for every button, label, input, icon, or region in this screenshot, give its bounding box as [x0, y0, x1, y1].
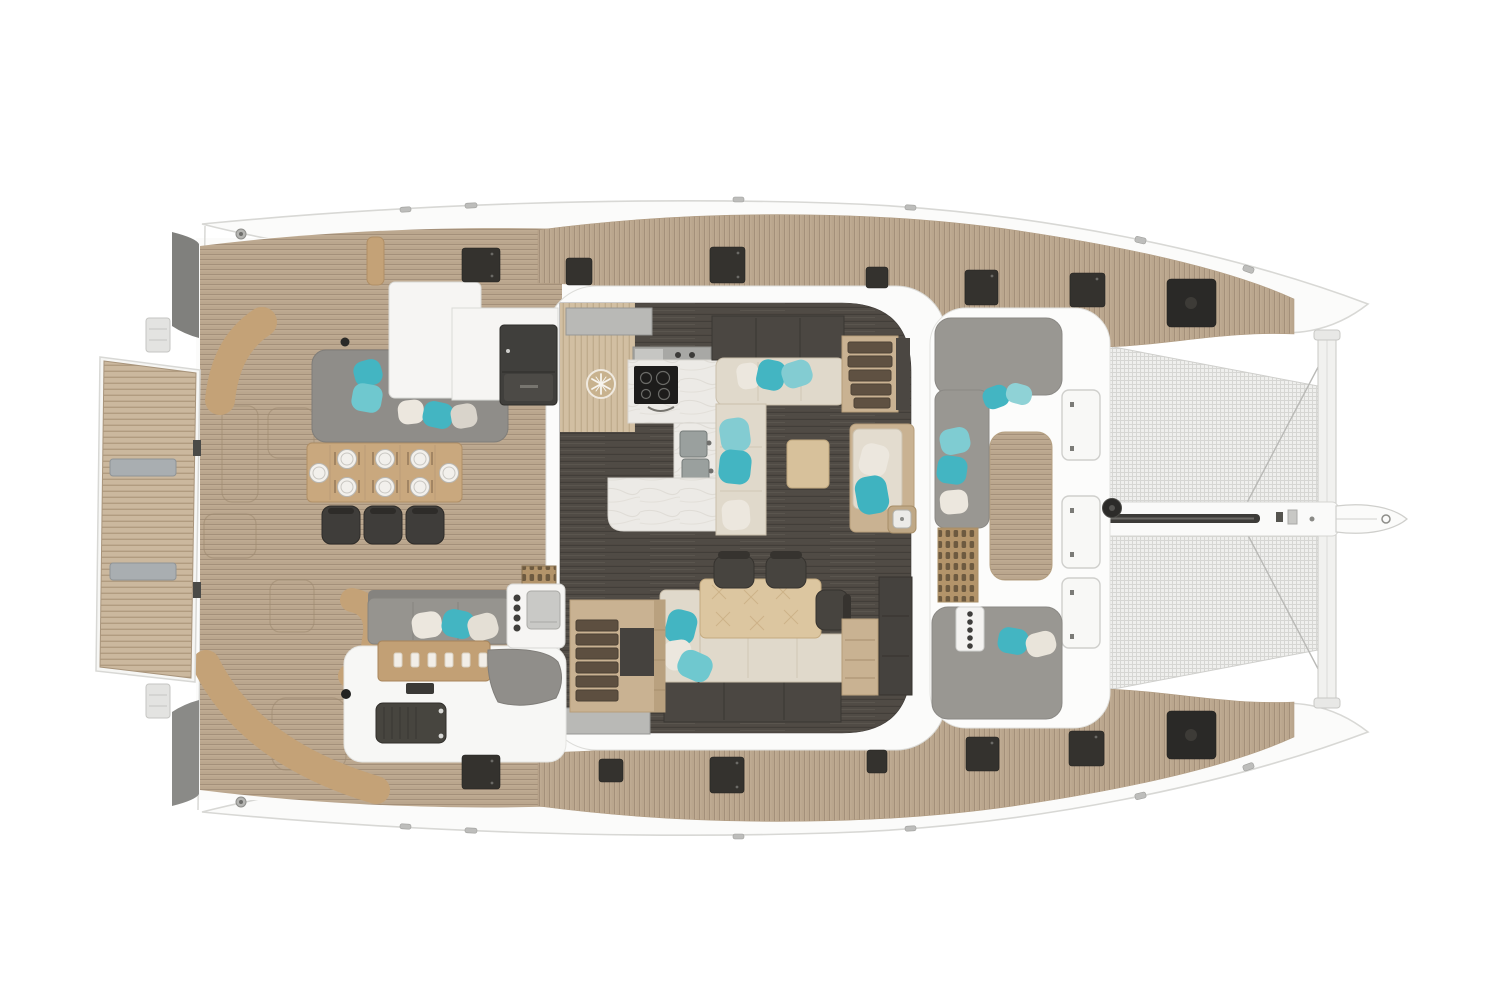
- stairs-port-hull: [842, 336, 910, 412]
- faucet-1: [707, 441, 712, 446]
- cockpit-door-mat: [406, 683, 434, 694]
- salon-chaise-seat: [850, 424, 916, 533]
- shelf-column-right: [842, 619, 878, 695]
- bow-assembly: [1092, 330, 1407, 708]
- fwd-lounge-starboard: [932, 607, 1062, 719]
- port-stern-boarding-step: [146, 318, 170, 352]
- deck-plan-stage: [0, 0, 1500, 999]
- foredeck-hatch-panel-2: [1062, 496, 1100, 568]
- crossbeam-cap-starboard: [1314, 698, 1340, 708]
- fwd-lounge-port: [935, 318, 1062, 395]
- cockpit-carpet-pad: [488, 649, 562, 705]
- hood-knob-1: [675, 352, 681, 358]
- deck-hatch: [867, 750, 887, 773]
- hood-knob-2: [689, 352, 695, 358]
- slatted-bench: [378, 641, 490, 681]
- crossbeam-cap-port: [1314, 330, 1340, 340]
- dark-column-right: [879, 577, 912, 695]
- windlass: [1103, 499, 1122, 518]
- deck-hatch: [710, 757, 744, 793]
- deck-hatch: [566, 258, 592, 285]
- deck-bolt-port: [341, 338, 350, 347]
- fwd-teak-bench: [990, 432, 1052, 580]
- outdoor-fridge-unit: [500, 325, 557, 405]
- deck-hatch: [710, 247, 745, 283]
- deck-hatch: [1069, 731, 1104, 766]
- salon-top-cabinets: [712, 316, 844, 360]
- walkway-fitting-1: [1276, 512, 1283, 522]
- platform-grip-pad-2: [110, 563, 176, 580]
- range-hood-panel: [635, 349, 663, 361]
- starboard-stern-step-wedge: [172, 700, 199, 806]
- deck-hatch: [866, 267, 888, 288]
- swim-platform: [96, 357, 201, 682]
- salon: [546, 286, 946, 750]
- sink-1: [680, 431, 707, 457]
- trampoline-starboard: [1098, 532, 1318, 692]
- starboard-stern-boarding-step: [146, 684, 170, 718]
- trampoline-port: [1098, 344, 1318, 504]
- cockpit-dining-table: [307, 443, 462, 502]
- deck-hatch: [966, 737, 999, 771]
- dining-low-cabinet: [664, 679, 841, 722]
- engine-hatch: [376, 703, 446, 743]
- transom-hinge-1: [193, 440, 201, 456]
- walkway-fitting-3: [1310, 517, 1315, 522]
- forward-cockpit: [932, 318, 1062, 719]
- coffee-table: [787, 440, 829, 488]
- port-stern-step-wedge: [172, 232, 199, 338]
- deck-hatch: [599, 759, 623, 782]
- deck-hatch: [462, 248, 500, 282]
- dining-chair-2: [766, 551, 806, 588]
- transom-hinge-2: [193, 582, 201, 598]
- deck-hatch: [462, 755, 500, 789]
- platform-grip-pad-1: [110, 459, 176, 476]
- anchor-track-rail: [1104, 518, 1254, 520]
- walkway-fitting-2: [1288, 510, 1297, 524]
- deck-bolt-starboard: [341, 689, 351, 699]
- salon-dining-table: [700, 579, 821, 638]
- foredeck-hatch-panel-1: [1062, 390, 1100, 460]
- foredeck-hatch-panel-3: [1062, 578, 1100, 648]
- induction-cooktop: [634, 366, 678, 404]
- stairs-starboard-hull: [570, 600, 665, 712]
- dining-chair-1: [714, 551, 754, 588]
- deck-hatch: [1070, 273, 1105, 307]
- cockpit-chairs: [322, 506, 444, 544]
- fwd-control-panel: [956, 607, 984, 651]
- fwd-teak-grating: [938, 528, 978, 602]
- fridge-freezer-icon: [587, 370, 615, 398]
- faucet-2: [709, 469, 714, 474]
- cockpit-backrest-panel: [367, 237, 384, 285]
- counter-return: [608, 478, 722, 531]
- roof-panel-aft-port: [566, 308, 652, 335]
- catamaran-floor-plan: [0, 0, 1500, 999]
- swim-platform-teak: [100, 361, 196, 678]
